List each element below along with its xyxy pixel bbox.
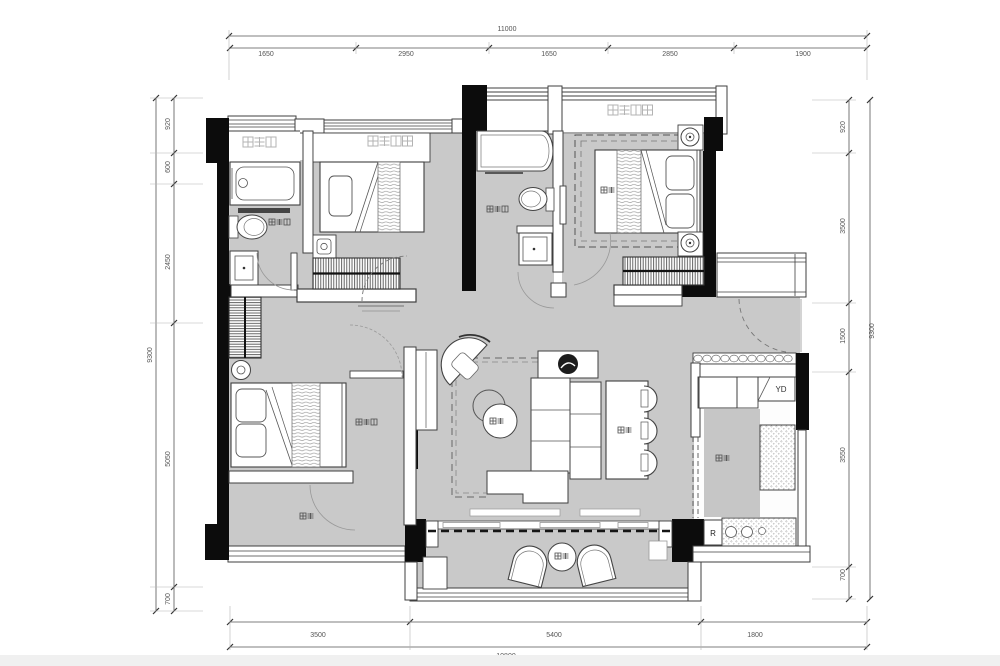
svg-text:9300: 9300 [869, 323, 876, 339]
svg-text:920: 920 [165, 118, 172, 130]
svg-text:R: R [710, 529, 716, 538]
svg-text:2850: 2850 [662, 51, 678, 58]
svg-text:700: 700 [165, 593, 172, 605]
svg-text:3550: 3550 [840, 447, 847, 463]
svg-text:3500: 3500 [310, 632, 326, 639]
svg-text:11000: 11000 [498, 26, 517, 33]
svg-text:5400: 5400 [546, 632, 562, 639]
svg-text:1800: 1800 [747, 632, 763, 639]
svg-text:1900: 1900 [795, 51, 811, 58]
svg-text:920: 920 [840, 121, 847, 133]
svg-text:1500: 1500 [840, 328, 847, 344]
svg-text:600: 600 [165, 161, 172, 173]
svg-text:9300: 9300 [147, 347, 154, 363]
svg-text:1650: 1650 [258, 51, 274, 58]
svg-text:5050: 5050 [165, 451, 172, 467]
svg-text:YD: YD [775, 385, 786, 394]
svg-text:1650: 1650 [541, 51, 557, 58]
svg-text:700: 700 [840, 569, 847, 581]
svg-text:2950: 2950 [398, 51, 414, 58]
svg-text:3500: 3500 [840, 218, 847, 234]
svg-text:2450: 2450 [165, 254, 172, 270]
